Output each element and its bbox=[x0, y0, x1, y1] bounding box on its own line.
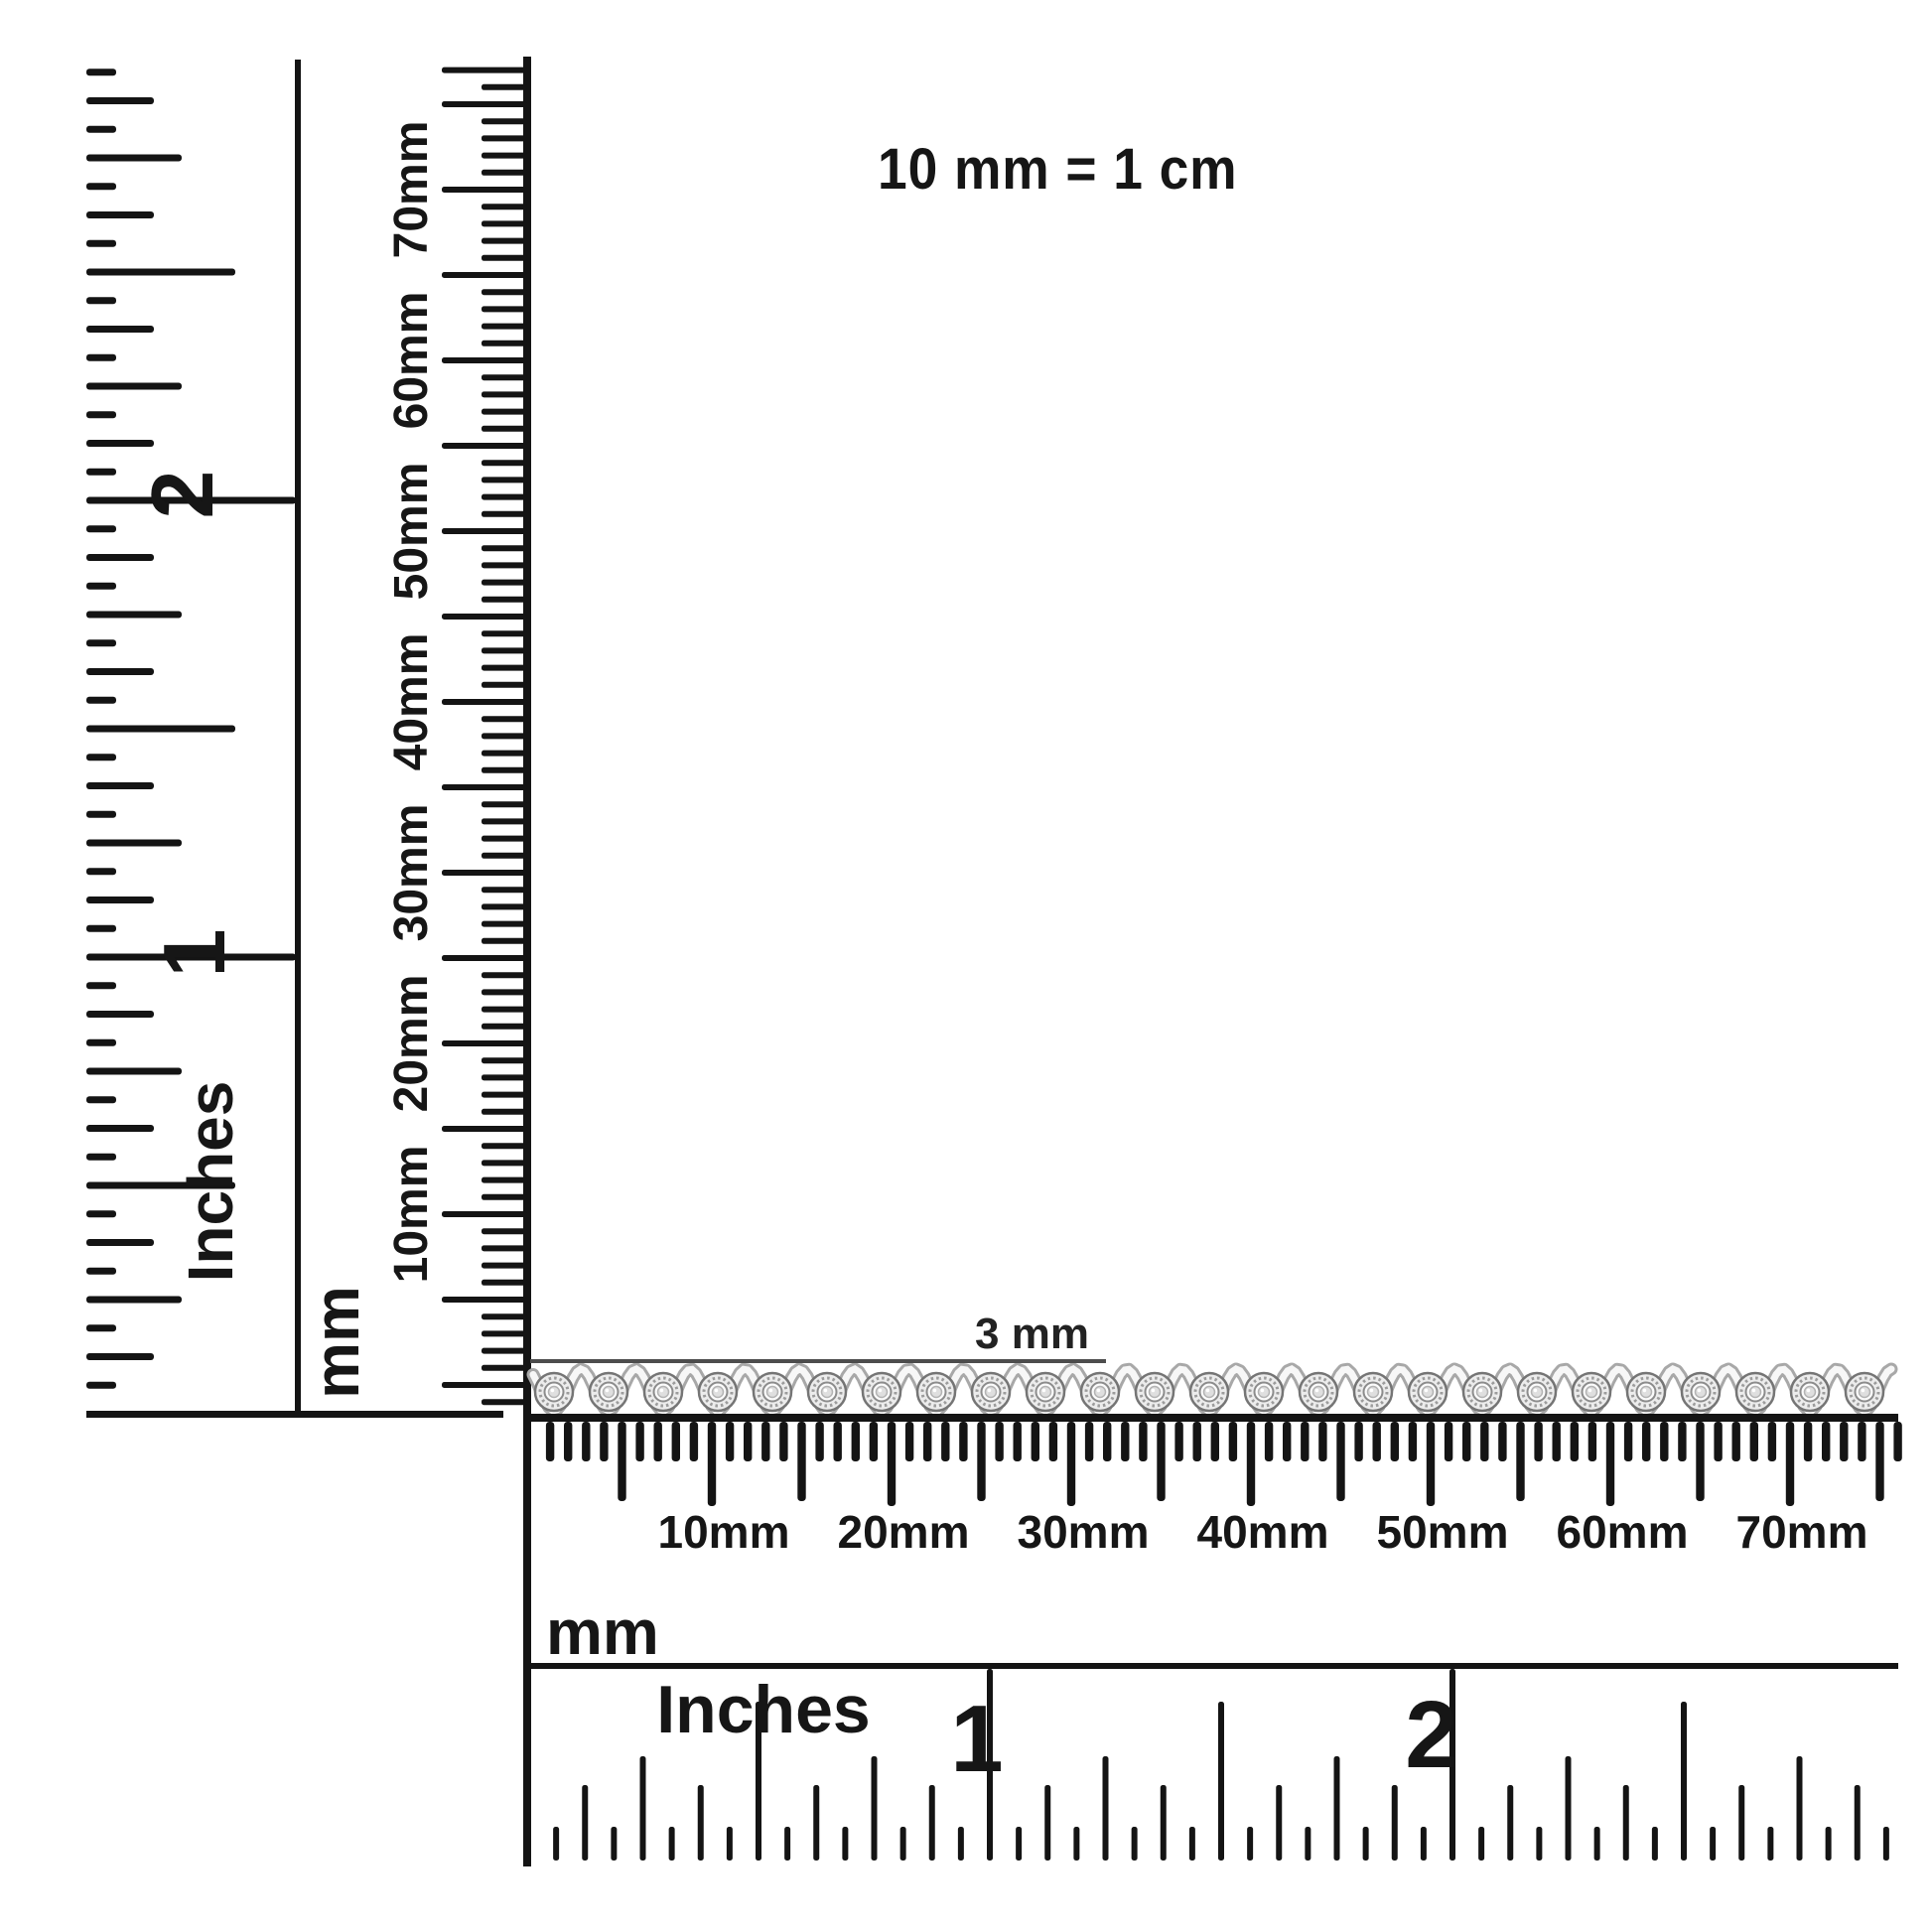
tick bbox=[482, 1365, 527, 1371]
tick bbox=[1893, 1422, 1901, 1461]
vertical-mm-ruler bbox=[442, 68, 527, 1406]
bracelet-link bbox=[1190, 1373, 1228, 1411]
tick bbox=[482, 341, 527, 346]
tick bbox=[482, 409, 527, 415]
tick bbox=[618, 1422, 625, 1501]
tick bbox=[482, 903, 527, 909]
tick bbox=[482, 84, 527, 90]
tick bbox=[86, 411, 116, 418]
tick bbox=[482, 887, 527, 893]
bracelet-link bbox=[1136, 1373, 1173, 1411]
tick bbox=[1767, 1827, 1773, 1861]
tick bbox=[442, 187, 527, 193]
bracelet-link bbox=[1409, 1373, 1447, 1411]
bracelet-link bbox=[1463, 1373, 1501, 1411]
bracelet-link bbox=[1791, 1373, 1829, 1411]
tick bbox=[86, 726, 235, 733]
tick bbox=[744, 1422, 752, 1461]
tick bbox=[86, 269, 235, 276]
tick bbox=[1276, 1785, 1282, 1861]
tick bbox=[870, 1422, 878, 1461]
tick bbox=[1875, 1422, 1883, 1501]
diamond-stone bbox=[1696, 1387, 1707, 1398]
tick bbox=[1606, 1422, 1614, 1506]
tick bbox=[482, 733, 527, 739]
tick bbox=[86, 1096, 116, 1103]
tick bbox=[482, 426, 527, 432]
bracelet-link bbox=[1846, 1373, 1883, 1411]
tick bbox=[834, 1422, 842, 1461]
horizontal-mm-tick-label: 10mm bbox=[658, 1509, 790, 1555]
tick bbox=[86, 697, 116, 704]
bracelet-photo bbox=[530, 1359, 1891, 1411]
ruler-baseline bbox=[86, 1411, 503, 1418]
bracelet-link bbox=[535, 1373, 573, 1411]
horizontal-mm-unit-label: mm bbox=[546, 1600, 659, 1664]
tick bbox=[482, 494, 527, 500]
tick bbox=[86, 840, 182, 847]
diamond-stone bbox=[604, 1387, 615, 1398]
tick bbox=[482, 716, 527, 722]
tick bbox=[1594, 1827, 1600, 1861]
vertical-mm-tick-label: 20mm bbox=[388, 975, 436, 1113]
tick bbox=[1750, 1422, 1758, 1461]
tick bbox=[1032, 1422, 1039, 1461]
tick bbox=[923, 1422, 931, 1461]
tick bbox=[482, 989, 527, 995]
tick bbox=[1049, 1422, 1057, 1461]
tick bbox=[482, 1160, 527, 1166]
tick bbox=[690, 1422, 698, 1461]
tick bbox=[1336, 1422, 1344, 1501]
tick bbox=[482, 1228, 527, 1234]
tick bbox=[1696, 1422, 1704, 1501]
tick bbox=[442, 1211, 527, 1217]
tick bbox=[995, 1422, 1003, 1461]
tick bbox=[1710, 1827, 1716, 1861]
tick bbox=[813, 1785, 819, 1861]
jewelry-measurement-diagram: 10 mm = 1 cm 3 mm Inches 1 2 mm mm Inche… bbox=[0, 0, 1932, 1932]
tick bbox=[86, 811, 116, 818]
tick bbox=[86, 668, 154, 675]
tick bbox=[442, 357, 527, 363]
horizontal-mm-tick-label: 30mm bbox=[1018, 1509, 1150, 1555]
tick bbox=[698, 1785, 704, 1861]
tick bbox=[1822, 1422, 1830, 1461]
tick bbox=[482, 1074, 527, 1080]
tick bbox=[1642, 1422, 1650, 1461]
vertical-mm-tick-label: 40mm bbox=[388, 633, 436, 771]
tick bbox=[482, 1143, 527, 1149]
tick bbox=[482, 665, 527, 671]
tick bbox=[1427, 1422, 1435, 1506]
tick bbox=[482, 836, 527, 842]
tick bbox=[442, 528, 527, 534]
tick bbox=[482, 255, 527, 261]
bracelet-link bbox=[590, 1373, 627, 1411]
tick bbox=[1174, 1422, 1182, 1461]
tick bbox=[872, 1756, 878, 1861]
tick bbox=[852, 1422, 860, 1461]
tick bbox=[442, 784, 527, 790]
tick bbox=[86, 183, 116, 190]
tick bbox=[1516, 1422, 1524, 1501]
bracelet-link bbox=[1736, 1373, 1774, 1411]
tick bbox=[1016, 1827, 1022, 1861]
tick bbox=[1786, 1422, 1794, 1506]
tick bbox=[1103, 1422, 1111, 1461]
bottom-ruler-numeral-2: 2 bbox=[1405, 1688, 1457, 1783]
tick bbox=[482, 1245, 527, 1251]
bracelet-link bbox=[754, 1373, 791, 1411]
bracelet-link bbox=[1300, 1373, 1337, 1411]
size-annotation: 3 mm bbox=[975, 1312, 1089, 1356]
tick bbox=[482, 1263, 527, 1269]
tick bbox=[1855, 1785, 1861, 1861]
diamond-stone bbox=[1587, 1387, 1597, 1398]
tick bbox=[86, 897, 154, 903]
tick bbox=[1678, 1422, 1686, 1461]
tick bbox=[1265, 1422, 1273, 1461]
diamond-stone bbox=[1805, 1387, 1816, 1398]
tick bbox=[1498, 1422, 1506, 1461]
diamond-stone bbox=[931, 1387, 942, 1398]
tick bbox=[1534, 1422, 1542, 1461]
tick bbox=[482, 1177, 527, 1183]
tick bbox=[482, 801, 527, 807]
tick bbox=[482, 204, 527, 209]
tick bbox=[442, 1382, 527, 1388]
tick bbox=[1507, 1785, 1513, 1861]
tick bbox=[86, 1324, 116, 1331]
tick bbox=[482, 118, 527, 124]
tick bbox=[1044, 1785, 1050, 1861]
left-inches-ruler bbox=[86, 60, 503, 1418]
tick bbox=[1553, 1422, 1561, 1461]
tick bbox=[482, 818, 527, 824]
tick bbox=[726, 1422, 734, 1461]
tick bbox=[1391, 1422, 1399, 1461]
tick bbox=[86, 1297, 182, 1304]
tick bbox=[442, 870, 527, 876]
tick bbox=[888, 1422, 896, 1506]
diamond-stone bbox=[1641, 1387, 1652, 1398]
horizontal-mm-tick-label: 70mm bbox=[1736, 1509, 1868, 1555]
tick bbox=[1218, 1702, 1224, 1861]
tick bbox=[482, 324, 527, 330]
tick bbox=[482, 135, 527, 141]
bracelet-link bbox=[1081, 1373, 1119, 1411]
ruler-scene bbox=[0, 0, 1932, 1932]
diamond-stone bbox=[1150, 1387, 1161, 1398]
tick bbox=[482, 1280, 527, 1286]
tick bbox=[959, 1422, 967, 1461]
tick bbox=[977, 1422, 985, 1501]
tick bbox=[86, 982, 116, 989]
tick bbox=[86, 354, 116, 361]
tick bbox=[86, 469, 116, 476]
bracelet-link bbox=[1682, 1373, 1720, 1411]
tick bbox=[482, 391, 527, 397]
tick bbox=[482, 220, 527, 226]
tick bbox=[482, 306, 527, 312]
tick bbox=[672, 1422, 680, 1461]
tick bbox=[1536, 1827, 1542, 1861]
tick bbox=[929, 1785, 935, 1861]
tick bbox=[1714, 1422, 1722, 1461]
bracelet-link bbox=[1027, 1373, 1064, 1411]
tick bbox=[611, 1827, 617, 1861]
tick bbox=[482, 545, 527, 551]
tick bbox=[442, 1126, 527, 1132]
tick bbox=[86, 612, 182, 619]
tick bbox=[86, 297, 116, 304]
tick bbox=[1247, 1827, 1253, 1861]
tick bbox=[86, 925, 116, 932]
tick bbox=[86, 1382, 116, 1389]
diamond-stone bbox=[549, 1387, 560, 1398]
diamond-stone bbox=[1750, 1387, 1761, 1398]
tick bbox=[86, 1125, 154, 1132]
tick bbox=[582, 1785, 588, 1861]
tick bbox=[482, 238, 527, 244]
tick bbox=[779, 1422, 787, 1461]
tick bbox=[1660, 1422, 1668, 1461]
tick bbox=[1768, 1422, 1776, 1461]
tick bbox=[1103, 1756, 1109, 1861]
vertical-mm-tick-label: 10mm bbox=[388, 1146, 436, 1284]
tick bbox=[1301, 1422, 1309, 1461]
tick bbox=[1409, 1422, 1417, 1461]
tick bbox=[482, 1109, 527, 1115]
bottom-ruler-numeral-1: 1 bbox=[950, 1692, 1003, 1787]
tick bbox=[482, 767, 527, 773]
tick bbox=[482, 562, 527, 568]
tick bbox=[1334, 1756, 1340, 1861]
horizontal-mm-tick-label: 60mm bbox=[1557, 1509, 1689, 1555]
tick bbox=[784, 1827, 790, 1861]
left-ruler-numeral-1: 1 bbox=[151, 929, 238, 978]
horizontal-mm-tick-label: 50mm bbox=[1377, 1509, 1509, 1555]
bottom-ruler-unit-label: Inches bbox=[656, 1676, 870, 1743]
vertical-mm-unit-label: mm bbox=[305, 1286, 368, 1399]
tick bbox=[482, 289, 527, 295]
tick bbox=[442, 1040, 527, 1046]
tick bbox=[86, 1154, 116, 1161]
tick bbox=[86, 1068, 182, 1075]
tick bbox=[86, 1268, 116, 1275]
tick bbox=[86, 211, 154, 218]
tick bbox=[1652, 1827, 1658, 1861]
tick bbox=[482, 477, 527, 483]
tick bbox=[708, 1422, 716, 1506]
tick bbox=[442, 68, 527, 73]
diamond-stone bbox=[658, 1387, 669, 1398]
tick bbox=[86, 155, 182, 162]
tick bbox=[1883, 1827, 1889, 1861]
tick bbox=[1681, 1702, 1687, 1861]
tick bbox=[1318, 1422, 1326, 1461]
tick bbox=[86, 383, 182, 390]
tick bbox=[482, 511, 527, 517]
tick bbox=[442, 1297, 527, 1303]
tick bbox=[905, 1422, 913, 1461]
diamond-stone bbox=[767, 1387, 778, 1398]
tick bbox=[482, 374, 527, 380]
tick bbox=[815, 1422, 823, 1461]
bracelet-link bbox=[644, 1373, 682, 1411]
tick bbox=[442, 272, 527, 278]
tick bbox=[941, 1422, 949, 1461]
tick bbox=[1421, 1827, 1427, 1861]
tick bbox=[482, 1057, 527, 1063]
bracelet-link bbox=[1627, 1373, 1665, 1411]
tick bbox=[482, 938, 527, 944]
tick bbox=[442, 101, 527, 107]
tick bbox=[86, 1039, 116, 1046]
diamond-stone bbox=[1860, 1387, 1870, 1398]
diamond-stone bbox=[713, 1387, 724, 1398]
bracelet-link bbox=[1573, 1373, 1610, 1411]
diamond-stone bbox=[1313, 1387, 1324, 1398]
bracelet-link bbox=[1518, 1373, 1556, 1411]
tick bbox=[1229, 1422, 1237, 1461]
tick bbox=[86, 126, 116, 133]
tick bbox=[482, 647, 527, 653]
tick bbox=[1121, 1422, 1129, 1461]
tick bbox=[1571, 1422, 1579, 1461]
tick bbox=[482, 853, 527, 859]
tick bbox=[1624, 1422, 1632, 1461]
tick bbox=[842, 1827, 848, 1861]
tick bbox=[564, 1422, 572, 1461]
tick bbox=[1804, 1422, 1812, 1461]
tick bbox=[482, 1024, 527, 1030]
bracelet-link bbox=[972, 1373, 1010, 1411]
diamond-stone bbox=[877, 1387, 888, 1398]
tick bbox=[86, 1239, 154, 1246]
tick bbox=[1247, 1422, 1255, 1506]
diamond-stone bbox=[1095, 1387, 1106, 1398]
tick bbox=[482, 630, 527, 636]
tick bbox=[86, 554, 154, 561]
tick bbox=[1132, 1827, 1138, 1861]
measurement-line bbox=[530, 1359, 1106, 1363]
tick bbox=[1157, 1422, 1165, 1501]
tick bbox=[1073, 1827, 1079, 1861]
bracelet-link bbox=[863, 1373, 900, 1411]
tick bbox=[482, 921, 527, 927]
bracelet-link bbox=[808, 1373, 846, 1411]
ruler-edge-line bbox=[527, 1414, 1898, 1422]
tick bbox=[1189, 1827, 1195, 1861]
tick bbox=[1478, 1827, 1484, 1861]
tick bbox=[482, 597, 527, 603]
diamond-stone bbox=[1368, 1387, 1379, 1398]
tick bbox=[86, 440, 154, 447]
tick bbox=[553, 1827, 559, 1861]
tick bbox=[1139, 1422, 1147, 1461]
tick bbox=[1283, 1422, 1291, 1461]
tick bbox=[1085, 1422, 1093, 1461]
tick bbox=[86, 240, 116, 247]
tick bbox=[482, 1007, 527, 1013]
tick bbox=[600, 1422, 608, 1461]
diamond-stone bbox=[1477, 1387, 1488, 1398]
tick bbox=[482, 1330, 527, 1336]
bracelet-link bbox=[1354, 1373, 1392, 1411]
tick bbox=[797, 1422, 805, 1501]
vertical-mm-tick-label: 70mm bbox=[388, 121, 436, 259]
tick bbox=[86, 868, 116, 875]
left-ruler-numeral-2: 2 bbox=[139, 471, 226, 519]
tick bbox=[86, 782, 154, 789]
bracelet-link bbox=[917, 1373, 955, 1411]
tick bbox=[442, 443, 527, 449]
tick bbox=[640, 1756, 646, 1861]
tick bbox=[1445, 1422, 1452, 1461]
tick bbox=[546, 1422, 554, 1461]
tick bbox=[1161, 1785, 1167, 1861]
tick bbox=[1014, 1422, 1022, 1461]
tick bbox=[1738, 1785, 1744, 1861]
tick bbox=[442, 699, 527, 705]
diamond-stone bbox=[986, 1387, 997, 1398]
tick bbox=[654, 1422, 662, 1461]
tick bbox=[482, 972, 527, 978]
tick bbox=[761, 1422, 769, 1461]
tick bbox=[1732, 1422, 1740, 1461]
tick bbox=[482, 1092, 527, 1098]
tick bbox=[1588, 1422, 1596, 1461]
vertical-mm-tick-label: 50mm bbox=[388, 463, 436, 601]
tick bbox=[86, 639, 116, 646]
scale-note: 10 mm = 1 cm bbox=[878, 141, 1238, 199]
tick bbox=[482, 460, 527, 466]
vertical-mm-tick-label: 30mm bbox=[388, 804, 436, 942]
diamond-stone bbox=[1040, 1387, 1051, 1398]
tick bbox=[727, 1827, 733, 1861]
tick bbox=[482, 751, 527, 757]
tick bbox=[86, 525, 116, 532]
tick bbox=[1373, 1422, 1381, 1461]
left-ruler-unit-label: Inches bbox=[179, 1081, 242, 1283]
tick bbox=[482, 580, 527, 586]
tick bbox=[1797, 1756, 1803, 1861]
tick bbox=[482, 1313, 527, 1319]
tick bbox=[582, 1422, 590, 1461]
tick bbox=[1354, 1422, 1362, 1461]
tick bbox=[86, 1353, 154, 1360]
diamond-stone bbox=[1204, 1387, 1215, 1398]
tick bbox=[1462, 1422, 1470, 1461]
tick bbox=[482, 153, 527, 159]
tick bbox=[669, 1827, 675, 1861]
tick bbox=[482, 1194, 527, 1200]
horizontal-mm-tick-label: 40mm bbox=[1197, 1509, 1329, 1555]
horizontal-mm-tick-label: 20mm bbox=[838, 1509, 970, 1555]
tick bbox=[1480, 1422, 1488, 1461]
tick bbox=[1858, 1422, 1865, 1461]
diamond-stone bbox=[822, 1387, 833, 1398]
tick bbox=[86, 1011, 154, 1018]
tick bbox=[1211, 1422, 1219, 1461]
tick bbox=[86, 69, 116, 75]
tick bbox=[86, 583, 116, 590]
diamond-stone bbox=[1532, 1387, 1543, 1398]
tick bbox=[1840, 1422, 1848, 1461]
tick bbox=[1193, 1422, 1201, 1461]
